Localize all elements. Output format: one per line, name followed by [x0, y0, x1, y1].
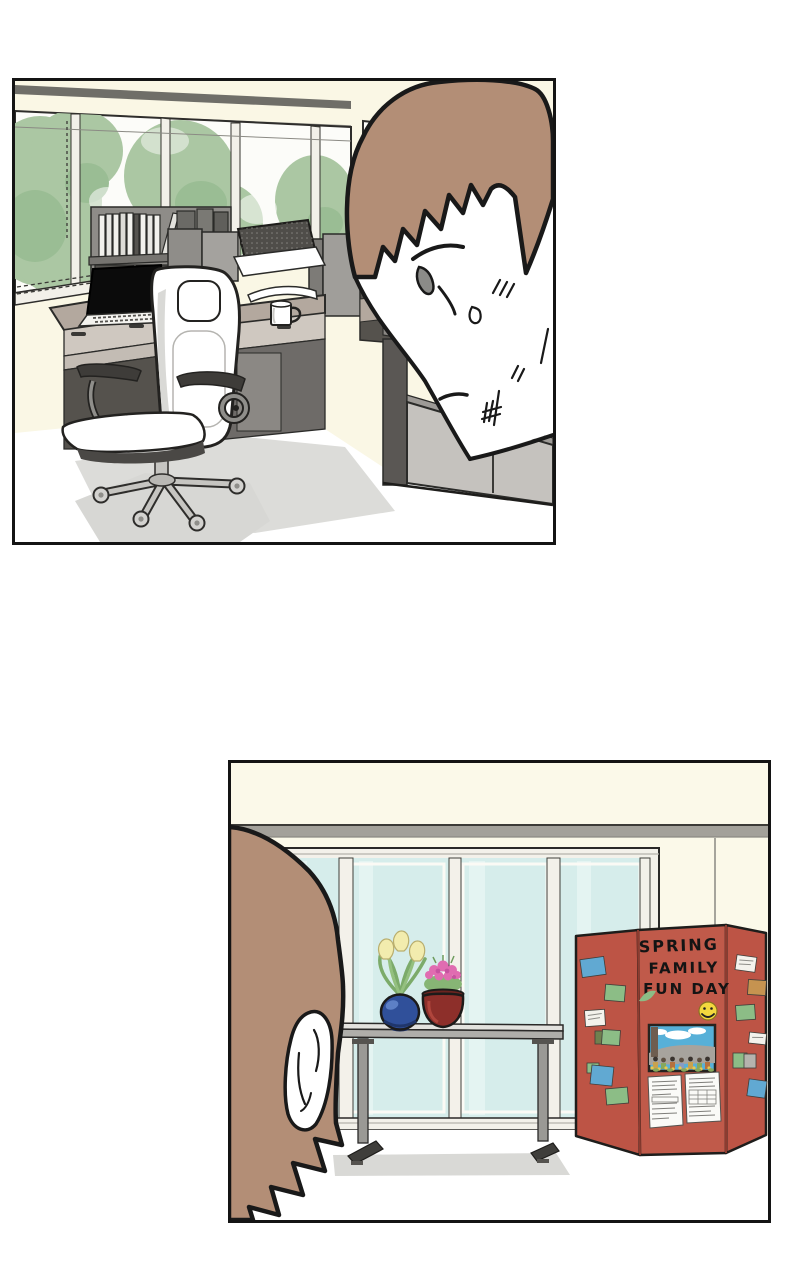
- flyer-right: [685, 1072, 721, 1123]
- sweat-drop-icon: [470, 307, 481, 323]
- sticky-note: [749, 1032, 767, 1045]
- trifold-board: SPRING FAMILY FUN DAY: [576, 925, 767, 1155]
- book: [120, 213, 126, 257]
- board-title-line3: FUN DAY: [643, 980, 731, 998]
- funday-scene-art: SPRING FAMILY FUN DAY: [231, 763, 768, 1220]
- sticky-note: [605, 1087, 628, 1105]
- sticky-note: [736, 1004, 756, 1020]
- flyer-left: [648, 1075, 683, 1128]
- wall-beam: [231, 825, 768, 837]
- chair-headrest: [178, 281, 220, 321]
- book: [113, 214, 119, 257]
- board-title: SPRING FAMILY FUN DAY: [638, 935, 730, 998]
- table-leg: [538, 1039, 548, 1141]
- sticky-note: [733, 1053, 756, 1068]
- leg-bracket: [352, 1039, 374, 1044]
- drawer-handle: [71, 332, 86, 336]
- sticky-note: [604, 984, 625, 1002]
- chair-seat: [63, 413, 205, 452]
- blue-pot: [381, 995, 419, 1030]
- drawer-handle: [129, 324, 144, 328]
- table-edge: [320, 1029, 563, 1039]
- sticky-note: [735, 955, 757, 973]
- office-scene-art: [15, 81, 553, 542]
- event-photo: [649, 1025, 715, 1072]
- leg-bracket: [532, 1039, 554, 1044]
- sticky-note: [587, 1063, 614, 1086]
- board-title-line1: SPRING: [638, 935, 719, 957]
- comic-page: SPRING FAMILY FUN DAY: [0, 0, 800, 1280]
- book: [154, 215, 160, 257]
- sticky-note: [747, 979, 766, 995]
- table-leg: [358, 1039, 368, 1143]
- book: [99, 215, 105, 257]
- photo-tree: [651, 1027, 658, 1057]
- sticky-note: [747, 1079, 767, 1098]
- foot-pad: [351, 1161, 363, 1165]
- book: [147, 215, 153, 257]
- sticky-note: [595, 1029, 620, 1045]
- panel-office-scene: [12, 78, 556, 545]
- book: [140, 214, 146, 257]
- smiley-icon: [699, 1002, 717, 1020]
- board-title-line2: FAMILY: [648, 958, 719, 977]
- sticky-note: [580, 956, 606, 977]
- panel-funday-scene: SPRING FAMILY FUN DAY: [228, 760, 771, 1223]
- sticky-note: [584, 1009, 605, 1026]
- book: [106, 214, 112, 257]
- foot-pad: [537, 1159, 549, 1163]
- book: [134, 214, 139, 257]
- book: [127, 213, 133, 257]
